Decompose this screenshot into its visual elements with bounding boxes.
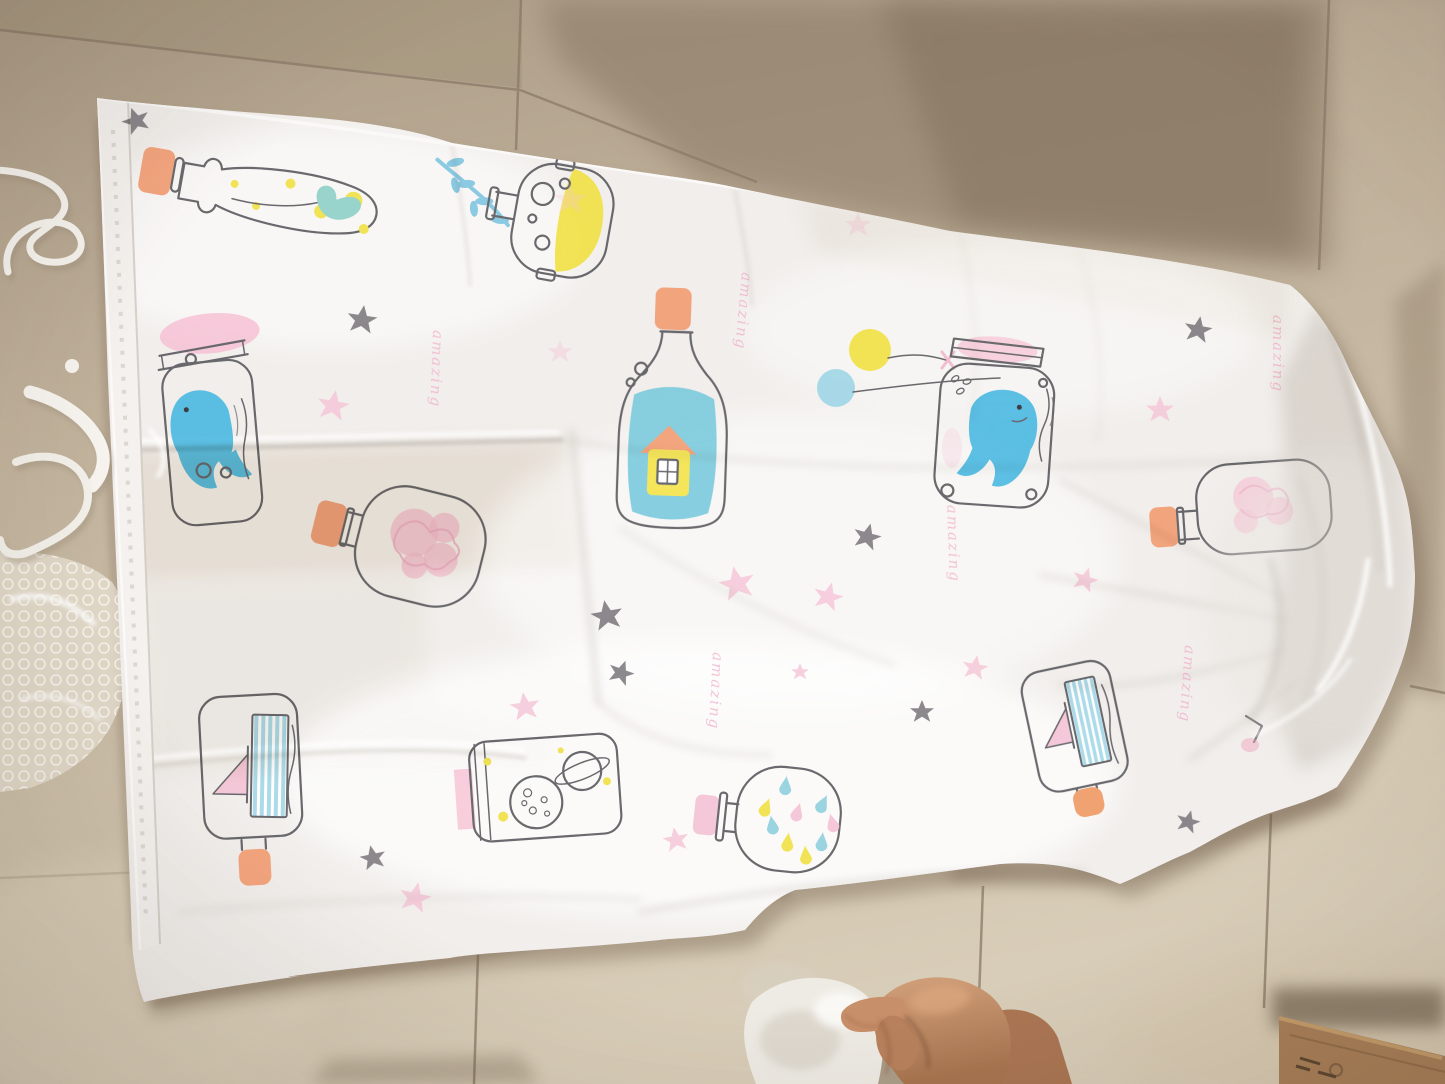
photo-vignette — [0, 0, 1445, 1084]
photo-scene: amazing amazing amazing amazing amazing … — [0, 0, 1445, 1084]
